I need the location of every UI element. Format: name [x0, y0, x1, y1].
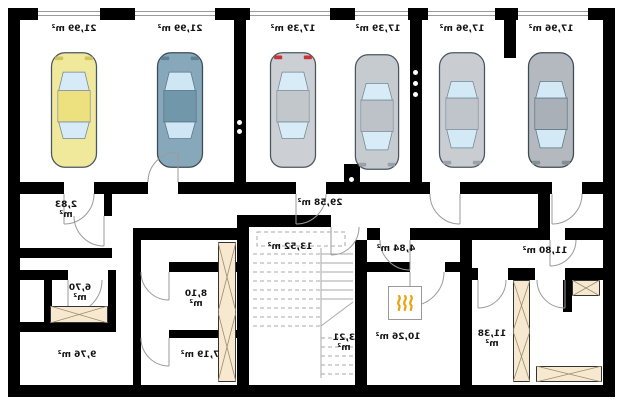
wall [8, 8, 38, 20]
wall [603, 8, 615, 397]
car-top-view [47, 50, 101, 170]
furniture-wardrobe [218, 242, 236, 382]
wall [508, 268, 535, 280]
door-arc [141, 272, 169, 300]
flame-icon [394, 294, 416, 312]
wall [8, 248, 112, 258]
wall-dot [413, 81, 418, 86]
garage-door [135, 11, 215, 16]
area-label-vestibule: 4,84 m² [377, 245, 416, 255]
wall [565, 228, 603, 240]
wall [8, 385, 615, 397]
floor-plan: 21,99 m² 21,99 m² 17,39 m² 17,39 m² 17,9… [0, 0, 623, 405]
wall [460, 182, 552, 194]
wall [367, 228, 380, 240]
garage-door [250, 11, 330, 16]
wall [234, 20, 246, 194]
car-top-view [524, 50, 578, 170]
wall [8, 270, 68, 280]
area-label-hall: 29,58 m² [298, 199, 343, 209]
wall [460, 228, 472, 390]
area-label-garage-6: 17,96 m² [529, 25, 574, 35]
wall-dot [413, 92, 418, 97]
door-arc [537, 280, 565, 308]
door-arc [74, 216, 104, 246]
wall [133, 228, 237, 240]
wall [538, 194, 550, 228]
door-arc [141, 338, 169, 366]
door-arc [430, 194, 460, 224]
wall [100, 8, 135, 20]
furniture-cabinet [50, 306, 108, 323]
wall [410, 20, 422, 194]
furniture-wardrobe [513, 280, 530, 382]
area-label-room-bottom-mid: 7,19 m² [181, 351, 220, 361]
area-label-stair-landing: 3,21m² [333, 334, 355, 354]
wall [215, 8, 250, 20]
garage-door [428, 11, 495, 16]
area-label-room-mid: 8,10m² [185, 290, 207, 310]
area-label-garage-2: 21,99 m² [158, 25, 203, 35]
wall [582, 182, 603, 194]
wall [588, 8, 615, 20]
garage-door [355, 11, 408, 16]
wall-dot [237, 129, 242, 134]
area-label-boiler-room: 10,26 m² [376, 333, 421, 343]
wall [565, 268, 603, 280]
wall [326, 182, 430, 194]
wall [8, 322, 112, 332]
wall [495, 8, 518, 20]
garage-door [38, 11, 100, 16]
wall [20, 182, 64, 194]
wall [178, 182, 296, 194]
area-label-garage-4: 17,39 m² [356, 25, 401, 35]
area-label-small-room: 2,83m² [55, 201, 77, 221]
wall [330, 8, 355, 20]
area-label-garage-5: 17,96 m² [440, 25, 485, 35]
area-label-stair-room: 13,52 m² [268, 243, 313, 253]
area-label-room-right-bottom: 11,38m² [478, 330, 506, 350]
area-label-room-left-mid: 6,70m² [69, 284, 91, 304]
area-label-room-left-bottom: 9,76 m² [58, 351, 97, 361]
furniture-shelf [572, 280, 600, 296]
wall [504, 20, 516, 58]
wall-dot [237, 120, 242, 125]
area-label-room-right-top: 11,80 m² [523, 247, 568, 257]
wall [472, 268, 478, 280]
car-top-view [435, 50, 489, 170]
wall [408, 8, 428, 20]
area-label-garage-3: 17,39 m² [271, 25, 316, 35]
wall [445, 262, 460, 272]
wall-dot [413, 70, 418, 75]
furniture-shelf [536, 366, 602, 382]
boiler-symbol [388, 286, 422, 320]
car-top-view [350, 52, 404, 172]
wall [472, 228, 550, 240]
wall [133, 240, 141, 390]
area-label-garage-1: 21,99 m² [52, 25, 97, 35]
door-arc [478, 280, 506, 308]
car-top-view [266, 50, 320, 170]
wall [237, 215, 249, 390]
garage-door [518, 11, 588, 16]
wall [104, 194, 112, 216]
wall [8, 8, 20, 397]
door-arc [552, 194, 582, 224]
wall [94, 182, 148, 194]
door-arc [148, 152, 178, 182]
wall [410, 228, 460, 240]
